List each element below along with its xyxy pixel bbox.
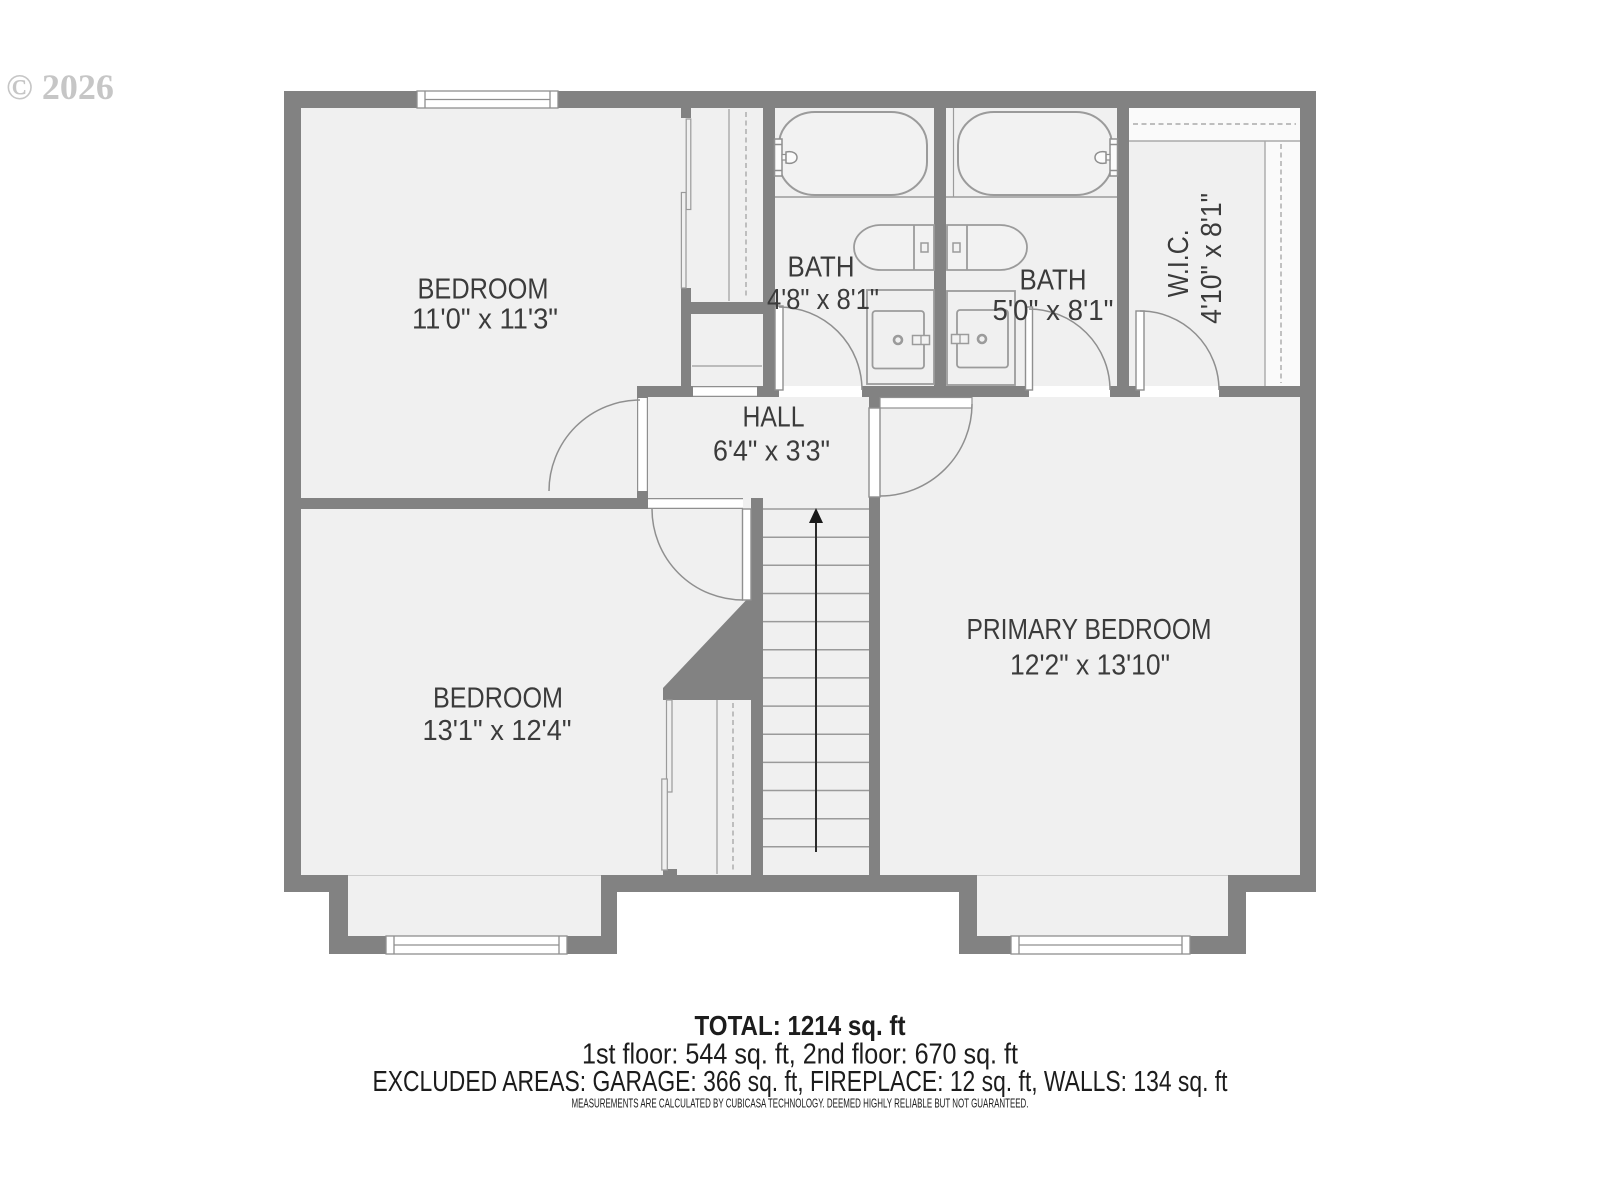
svg-text:13'1" x 12'4": 13'1" x 12'4" <box>423 715 572 747</box>
svg-text:4'10" x 8'1": 4'10" x 8'1" <box>1196 193 1228 324</box>
svg-text:6'4" x 3'3": 6'4" x 3'3" <box>713 436 830 468</box>
svg-text:BATH: BATH <box>788 252 855 284</box>
svg-text:PRIMARY BEDROOM: PRIMARY BEDROOM <box>967 614 1212 646</box>
svg-text:11'0" x 11'3": 11'0" x 11'3" <box>412 304 558 336</box>
svg-text:BEDROOM: BEDROOM <box>433 683 563 715</box>
svg-text:TOTAL: 1214 sq. ft: TOTAL: 1214 sq. ft <box>695 1010 906 1041</box>
svg-text:BEDROOM: BEDROOM <box>418 274 549 306</box>
svg-text:4'8" x 8'1": 4'8" x 8'1" <box>767 284 879 316</box>
svg-text:W.I.C.: W.I.C. <box>1163 229 1195 297</box>
svg-text:MEASUREMENTS ARE CALCULATED BY: MEASUREMENTS ARE CALCULATED BY CUBICASA … <box>572 1097 1029 1111</box>
svg-text:© 2026: © 2026 <box>6 67 114 107</box>
svg-text:HALL: HALL <box>743 402 805 434</box>
svg-text:12'2" x 13'10": 12'2" x 13'10" <box>1010 650 1170 682</box>
svg-text:BATH: BATH <box>1020 264 1087 296</box>
svg-text:EXCLUDED AREAS: GARAGE: 366 sq: EXCLUDED AREAS: GARAGE: 366 sq. ft, FIRE… <box>373 1066 1228 1098</box>
svg-text:5'0" x 8'1": 5'0" x 8'1" <box>993 295 1114 327</box>
